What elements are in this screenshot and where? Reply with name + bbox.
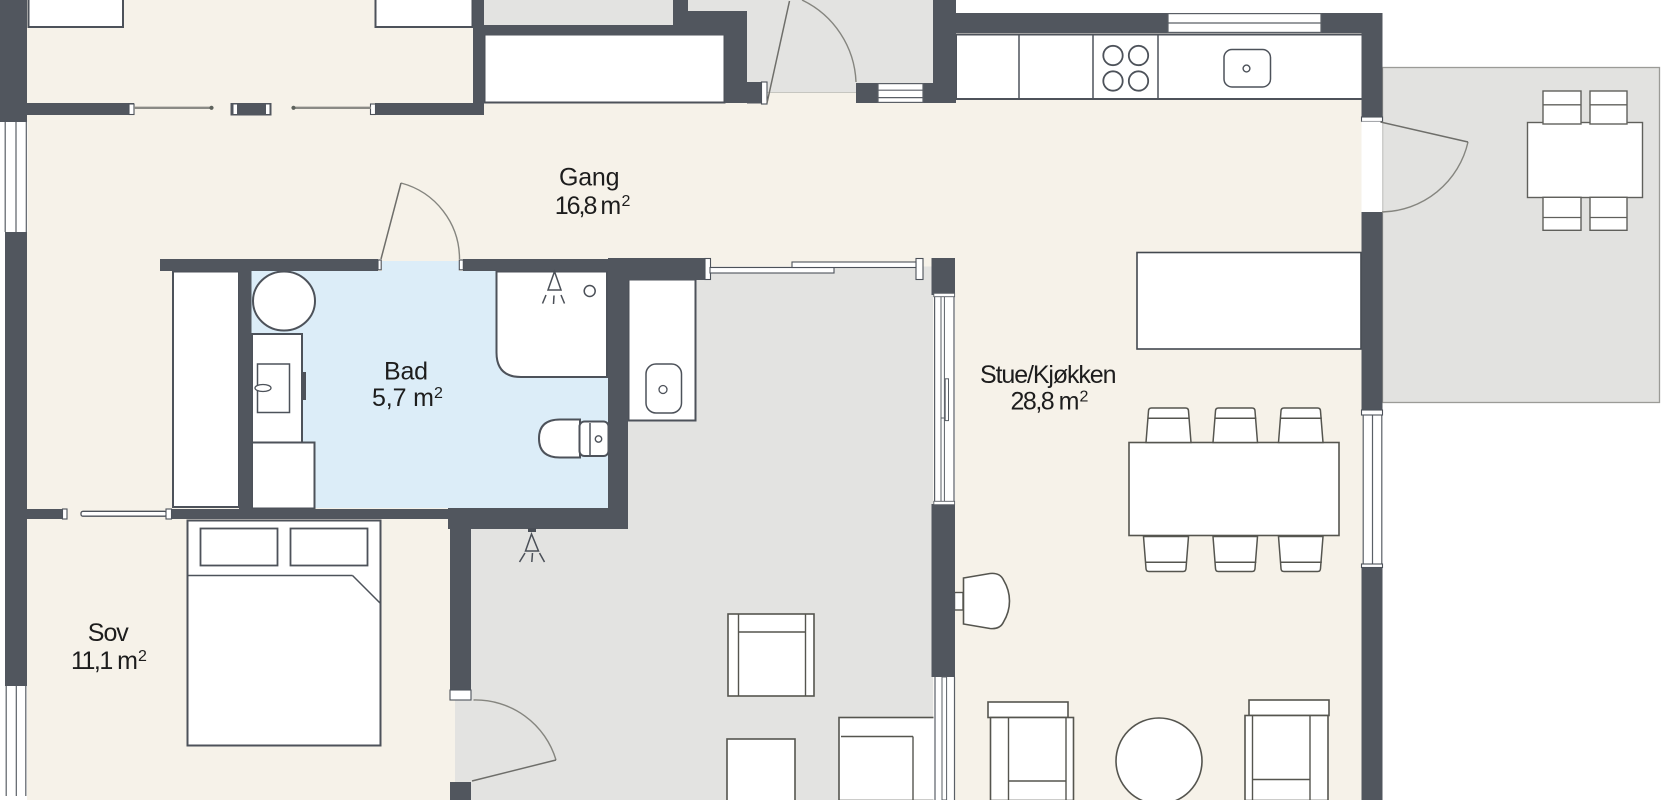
svg-text:Bad: Bad xyxy=(384,358,428,386)
svg-text:Gang: Gang xyxy=(559,164,620,192)
svg-text:28,8 m: 28,8 m xyxy=(1011,388,1080,416)
svg-text:2: 2 xyxy=(138,648,147,665)
svg-text:2: 2 xyxy=(622,193,631,210)
svg-text:2: 2 xyxy=(434,385,443,402)
svg-text:16,8 m: 16,8 m xyxy=(555,192,622,220)
svg-text:2: 2 xyxy=(1080,389,1089,406)
svg-text:Stue/Kjøkken: Stue/Kjøkken xyxy=(980,361,1117,389)
svg-text:11,1 m: 11,1 m xyxy=(71,647,138,675)
svg-text:5,7 m: 5,7 m xyxy=(372,384,434,412)
svg-text:Sov: Sov xyxy=(88,619,130,647)
